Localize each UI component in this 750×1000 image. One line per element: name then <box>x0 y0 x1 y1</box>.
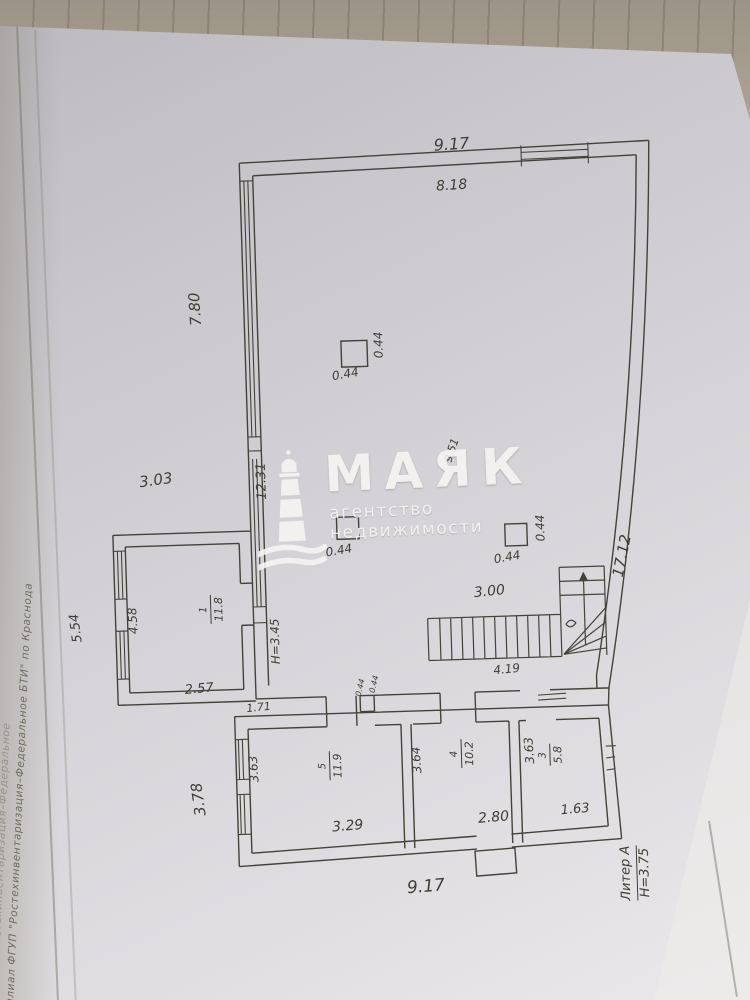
dim-bottom-outer: 9.17 <box>406 877 445 897</box>
room5-label: 5 11.9 <box>318 751 343 780</box>
dim-band-left: 3.78 <box>189 782 208 817</box>
room3-area: 5.8 <box>549 744 563 766</box>
room4-label: 4 10.2 <box>449 739 474 768</box>
room4-area: 10.2 <box>460 739 474 768</box>
floorplan-photo: Филиал ФГУП "Ростехинвентаризация–Федера… <box>0 0 750 1000</box>
hall-height-note: Н=3.45 <box>268 618 281 664</box>
dim-room3-left: 3.63 <box>522 737 536 764</box>
dim-stair-width: 3.00 <box>473 583 505 600</box>
lighthouse-icon <box>253 446 329 581</box>
annex-room-label: 1 11.8 <box>199 595 224 624</box>
column-size: 0.44 <box>372 331 385 358</box>
room3-number: 3 <box>538 749 549 762</box>
dim-wall-gap: 1.71 <box>246 701 271 714</box>
dim-top-outer: 9.17 <box>433 135 470 153</box>
room5-area: 11.9 <box>329 751 343 780</box>
document-page: Филиал ФГУП "Ростехинвентаризация–Федера… <box>0 0 750 1000</box>
dim-left-lower: 3.03 <box>138 471 173 490</box>
stairs-up-arrow-icon <box>579 571 588 580</box>
watermark: МАЯК агентство недвижимости <box>247 429 573 588</box>
liter-name: Литер А <box>618 845 639 901</box>
watermark-title: МАЯК <box>323 437 533 504</box>
room5-number: 5 <box>318 760 329 773</box>
dim-stair-length: 4.19 <box>493 662 521 677</box>
dim-room4-bottom: 2.80 <box>477 809 509 826</box>
dim-annex-outer: 5.54 <box>68 613 85 643</box>
dim-room5-left: 3.63 <box>247 755 261 782</box>
room4-number: 4 <box>450 748 461 761</box>
room3-label: 3 5.8 <box>538 744 563 766</box>
dim-annex-inner: 4.58 <box>126 607 140 634</box>
dim-room3-bottom: 1.63 <box>560 802 590 817</box>
dim-top-inner: 8.18 <box>436 178 468 194</box>
dim-room4-left: 3.64 <box>410 746 424 773</box>
annex-room-area: 11.8 <box>210 595 224 624</box>
liter-height: Н=3.75 <box>637 848 655 898</box>
dim-annex-bottom: 2.57 <box>184 682 214 697</box>
annex-room-number: 1 <box>199 603 210 616</box>
liter-note: Литер А Н=3.75 <box>618 845 655 901</box>
dim-left-upper: 7.80 <box>187 292 204 326</box>
dim-room5-bottom: 3.29 <box>332 818 364 835</box>
